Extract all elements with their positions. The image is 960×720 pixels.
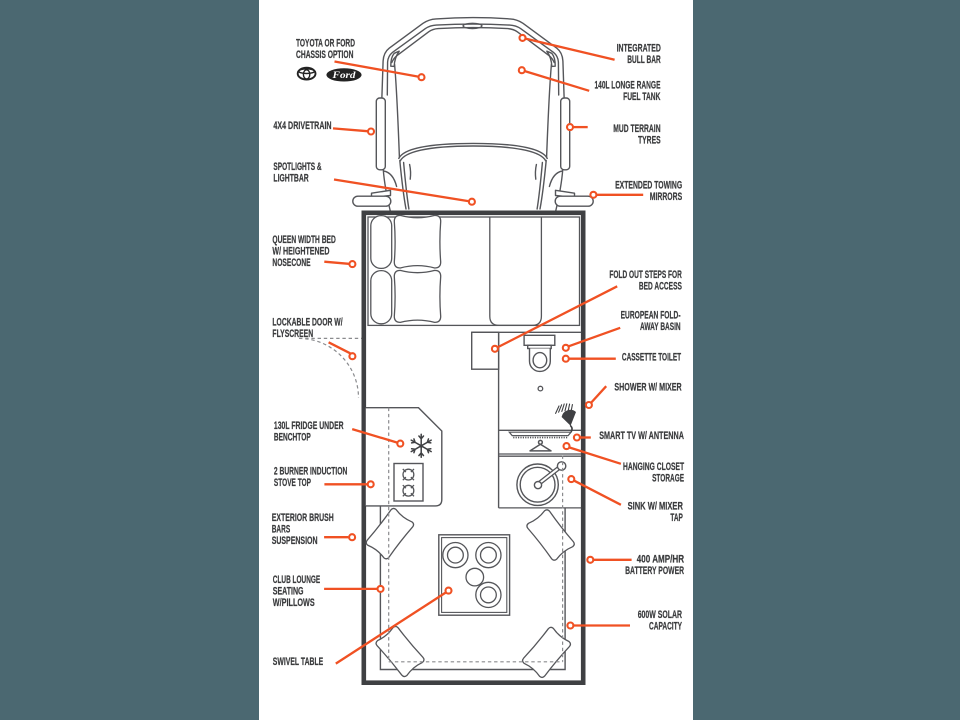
svg-text:EUROPEAN FOLD-: EUROPEAN FOLD-: [621, 309, 681, 321]
svg-text:EXTERIOR BRUSH: EXTERIOR BRUSH: [272, 512, 334, 524]
svg-text:FLYSCREEN: FLYSCREEN: [272, 328, 313, 340]
svg-text:W/PILLOWS: W/PILLOWS: [273, 597, 315, 609]
svg-text:TYRES: TYRES: [638, 134, 661, 146]
svg-text:MIRRORS: MIRRORS: [650, 191, 682, 203]
svg-text:SHOWER W/ MIXER: SHOWER W/ MIXER: [614, 382, 681, 394]
svg-text:140L LONGE RANGE: 140L LONGE RANGE: [595, 79, 661, 91]
svg-text:TOYOTA OR FORD: TOYOTA OR FORD: [296, 37, 355, 49]
svg-text:130L FRIDGE UNDER: 130L FRIDGE UNDER: [274, 420, 344, 432]
svg-text:BULL BAR: BULL BAR: [627, 54, 661, 66]
svg-text:NOSECONE: NOSECONE: [272, 257, 310, 269]
svg-text:SPOTLIGHTS &: SPOTLIGHTS &: [273, 161, 321, 173]
svg-text:2 BURNER INDUCTION: 2 BURNER INDUCTION: [274, 466, 347, 478]
svg-text:LOCKABLE DOOR W/: LOCKABLE DOOR W/: [272, 317, 342, 329]
svg-text:LIGHTBAR: LIGHTBAR: [273, 173, 308, 185]
svg-text:STORAGE: STORAGE: [652, 473, 684, 485]
svg-text:BATTERY POWER: BATTERY POWER: [625, 565, 684, 577]
svg-text:SWIVEL TABLE: SWIVEL TABLE: [273, 656, 323, 668]
svg-text:SINK W/ MIXER: SINK W/ MIXER: [628, 501, 683, 513]
svg-text:CLUB LOUNGE: CLUB LOUNGE: [273, 574, 320, 586]
svg-text:SEATING: SEATING: [273, 586, 304, 598]
svg-text:Ford: Ford: [331, 70, 356, 80]
svg-text:BED ACCESS: BED ACCESS: [639, 280, 682, 292]
svg-text:CASSETTE TOILET: CASSETTE TOILET: [622, 352, 681, 364]
svg-text:INTEGRATED: INTEGRATED: [617, 43, 661, 55]
svg-text:CHASSIS OPTION: CHASSIS OPTION: [296, 49, 354, 61]
svg-text:600W SOLAR: 600W SOLAR: [638, 609, 682, 621]
svg-text:EXTENDED TOWING: EXTENDED TOWING: [615, 180, 682, 192]
svg-text:W/ HEIGHTENED: W/ HEIGHTENED: [272, 246, 329, 258]
svg-text:QUEEN WIDTH BED: QUEEN WIDTH BED: [272, 234, 336, 246]
svg-text:TAP: TAP: [670, 512, 683, 524]
svg-text:SMART TV W/ ANTENNA: SMART TV W/ ANTENNA: [599, 430, 684, 442]
svg-text:AWAY BASIN: AWAY BASIN: [640, 321, 681, 333]
svg-text:CAPACITY: CAPACITY: [649, 621, 682, 633]
svg-text:MUD TERRAIN: MUD TERRAIN: [613, 123, 660, 135]
svg-text:BENCHTOP: BENCHTOP: [274, 432, 311, 444]
svg-text:400 AMP/HR: 400 AMP/HR: [637, 553, 684, 565]
svg-text:4X4 DRIVETRAIN: 4X4 DRIVETRAIN: [273, 120, 331, 132]
svg-text:BARS: BARS: [272, 523, 291, 535]
svg-text:SUSPENSION: SUSPENSION: [272, 535, 318, 547]
svg-text:FOLD OUT STEPS FOR: FOLD OUT STEPS FOR: [609, 269, 682, 281]
svg-text:HANGING CLOSET: HANGING CLOSET: [623, 461, 684, 473]
svg-text:FUEL TANK: FUEL TANK: [623, 91, 660, 103]
svg-text:STOVE TOP: STOVE TOP: [274, 477, 312, 489]
